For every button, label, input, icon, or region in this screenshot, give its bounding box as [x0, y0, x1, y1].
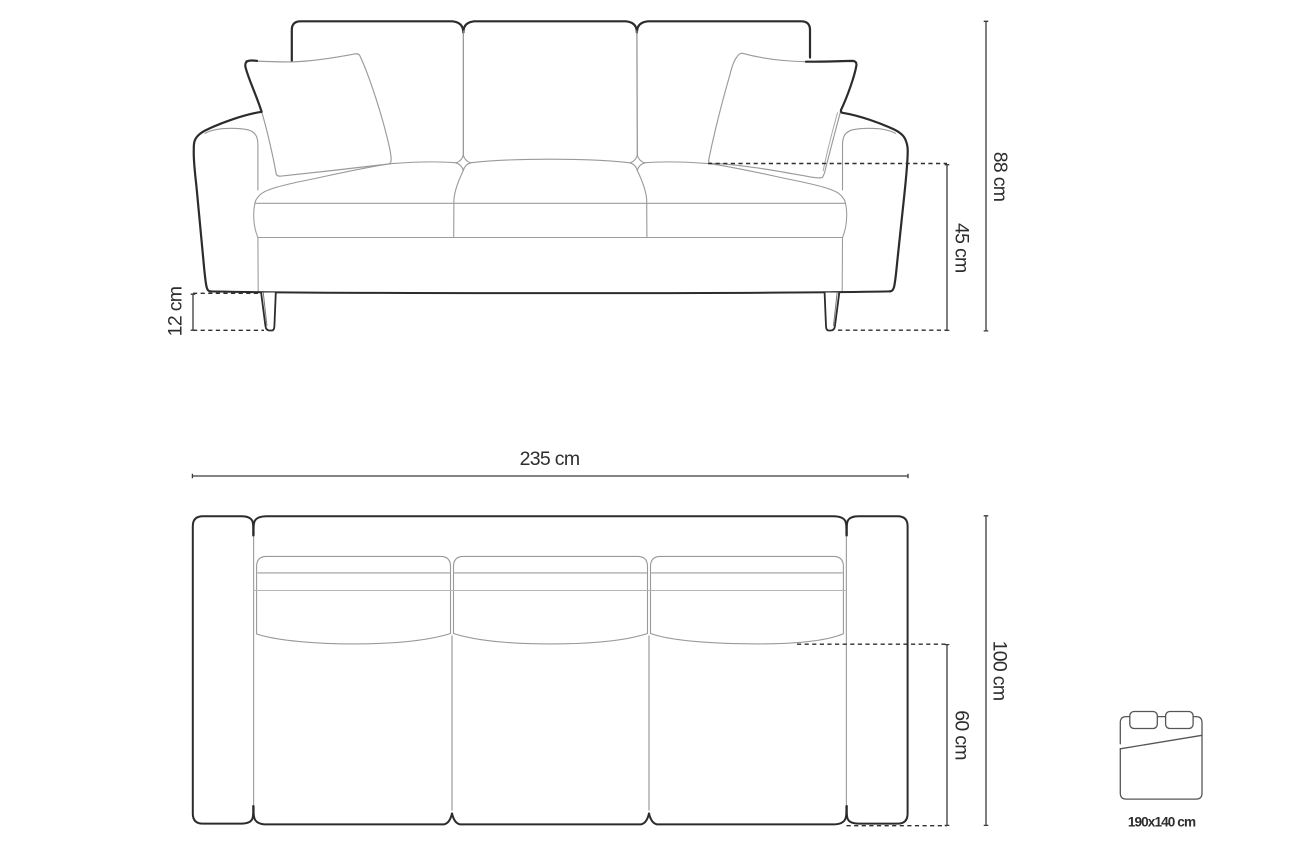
svg-text:45 cm: 45 cm: [951, 223, 973, 273]
svg-text:88 cm: 88 cm: [989, 152, 1011, 202]
svg-text:190x140 cm: 190x140 cm: [1128, 815, 1196, 830]
svg-text:235 cm: 235 cm: [520, 448, 580, 470]
svg-text:12 cm: 12 cm: [165, 287, 187, 337]
svg-text:100 cm: 100 cm: [989, 641, 1011, 701]
svg-text:60 cm: 60 cm: [951, 710, 973, 760]
